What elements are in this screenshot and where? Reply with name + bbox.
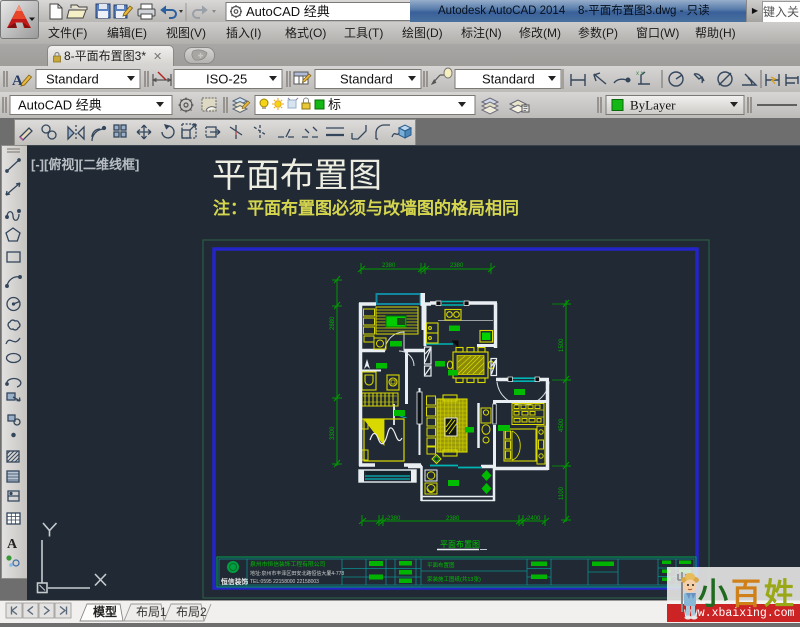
svg-text:A: A	[7, 537, 18, 552]
svg-text:ByLayer: ByLayer	[630, 98, 676, 113]
svg-text:Standard: Standard	[482, 72, 535, 87]
svg-text:AutoCAD 经典: AutoCAD 经典	[246, 4, 330, 19]
svg-text:布局2: 布局2	[176, 605, 207, 619]
svg-text:ISO-25: ISO-25	[206, 72, 247, 87]
svg-text:A: A	[12, 73, 23, 89]
svg-text:Standard: Standard	[46, 72, 99, 87]
svg-text:AutoCAD 经典: AutoCAD 经典	[18, 98, 102, 113]
svg-text:布局1: 布局1	[136, 605, 167, 619]
svg-text:标: 标	[328, 97, 341, 112]
svg-text:x x: x x	[636, 71, 644, 77]
svg-text:Standard: Standard	[340, 72, 393, 87]
svg-text:模型: 模型	[93, 604, 117, 619]
